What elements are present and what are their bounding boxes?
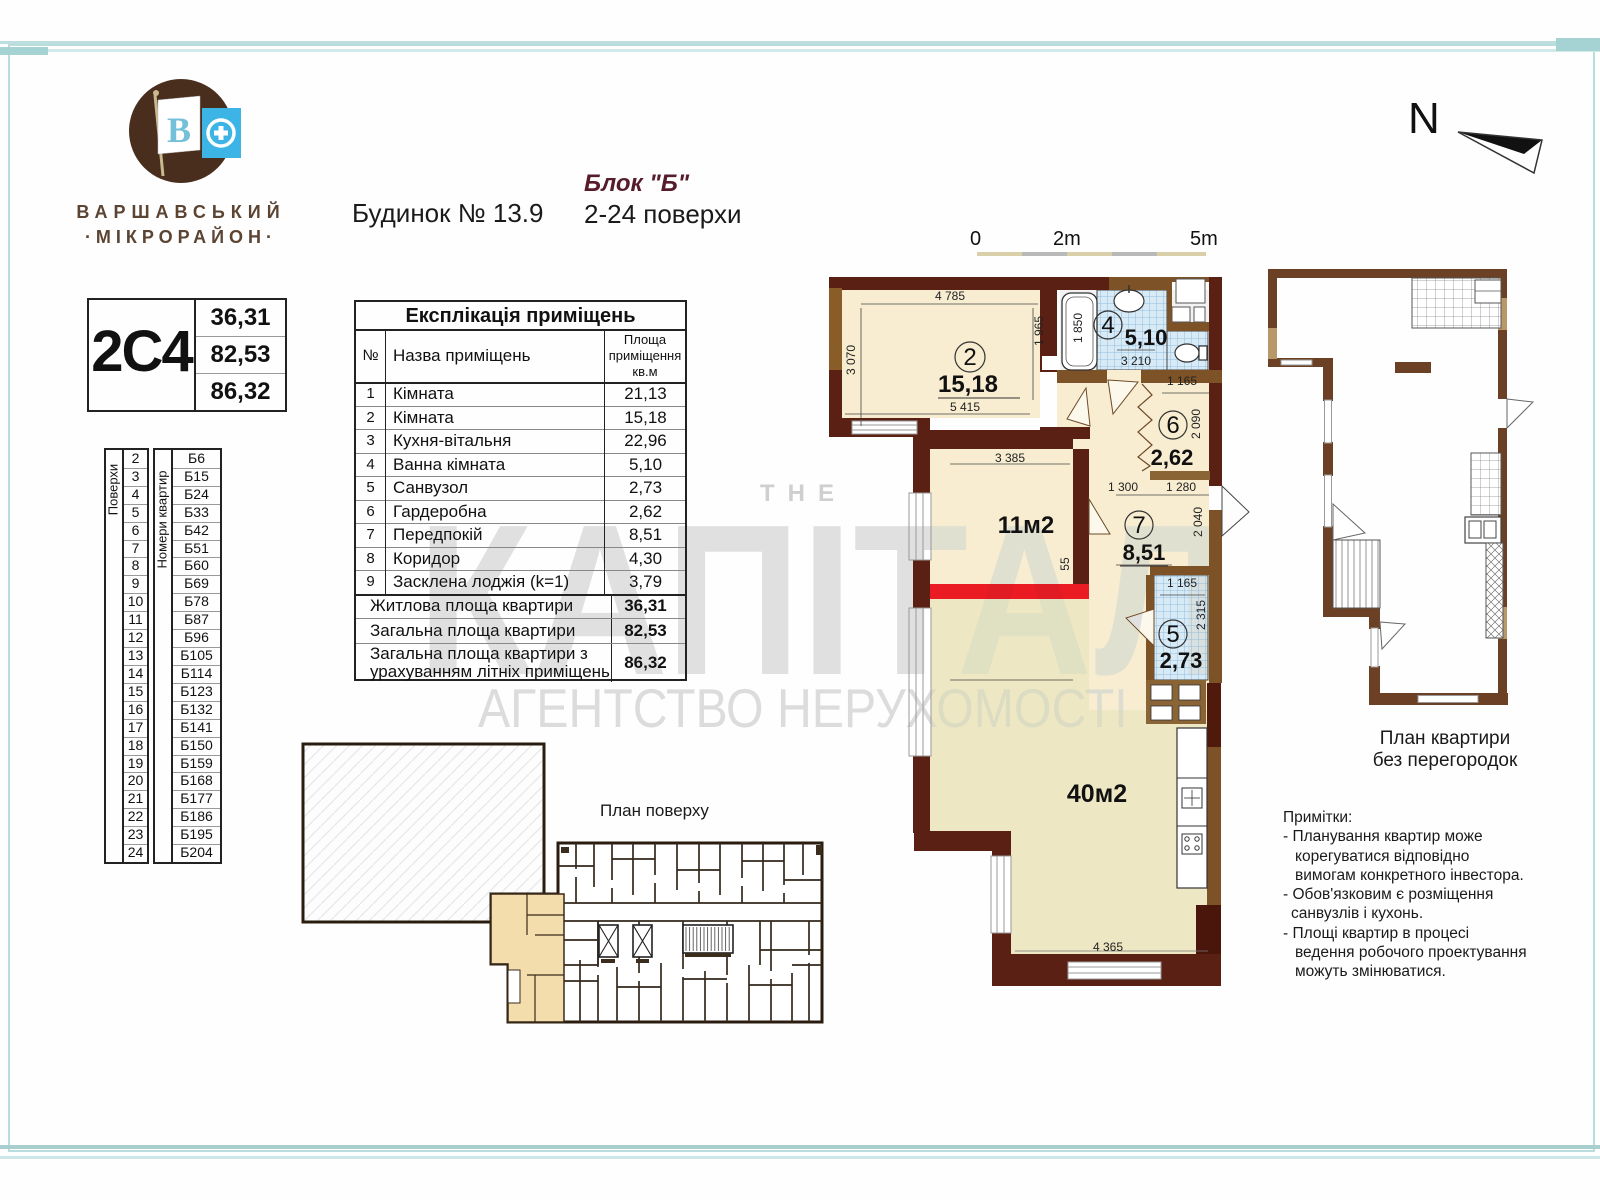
svg-text:40м2: 40м2 <box>1067 780 1127 808</box>
svg-text:1 850: 1 850 <box>1071 313 1085 343</box>
svg-text:3 385: 3 385 <box>995 451 1025 465</box>
svg-text:5,10: 5,10 <box>1125 325 1168 350</box>
svg-text:4 785: 4 785 <box>935 289 965 303</box>
svg-text:5 415: 5 415 <box>950 400 980 414</box>
svg-text:2 090: 2 090 <box>1189 409 1203 439</box>
svg-text:2: 2 <box>963 344 976 371</box>
svg-text:6: 6 <box>1166 412 1179 439</box>
svg-text:1 965: 1 965 <box>1032 316 1046 346</box>
svg-text:4 365: 4 365 <box>1093 940 1123 954</box>
svg-text:В: В <box>167 110 191 150</box>
svg-text:3 070: 3 070 <box>844 345 858 375</box>
svg-text:15,18: 15,18 <box>938 371 998 398</box>
svg-text:1 165: 1 165 <box>1167 374 1197 388</box>
svg-text:3 210: 3 210 <box>1121 354 1151 368</box>
svg-text:4: 4 <box>1101 312 1114 339</box>
svg-text:2,62: 2,62 <box>1151 445 1194 470</box>
